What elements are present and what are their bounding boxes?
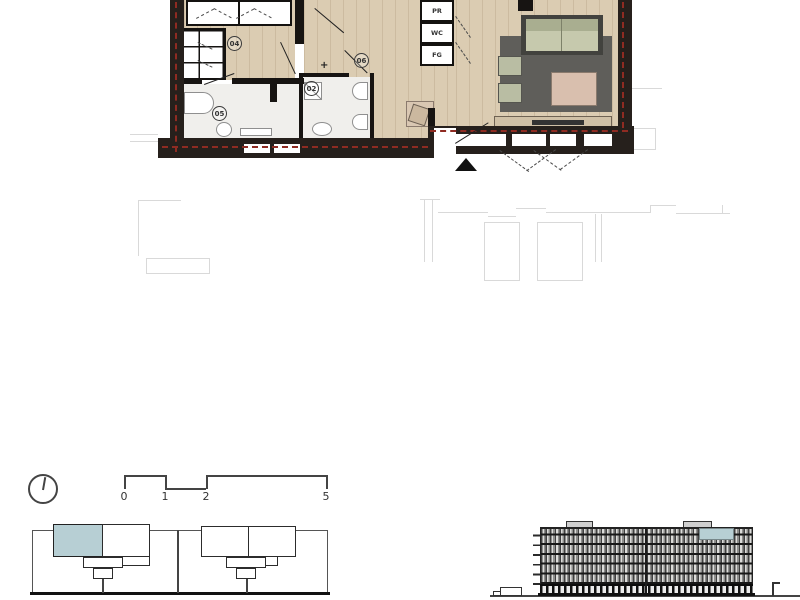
elevation-kiosk — [500, 587, 522, 596]
neighbor-outline — [130, 134, 158, 135]
exterior-wall-left — [170, 0, 184, 158]
balcony-door-glass — [512, 134, 546, 146]
interior-wall — [370, 73, 374, 138]
scale-tick-label: 0 — [117, 490, 131, 503]
room-label: 04 — [227, 36, 242, 51]
elevation-joint-line — [645, 527, 647, 594]
toilet-icon — [216, 122, 232, 137]
neighbor-outline — [722, 205, 723, 214]
scale-bar-segment — [206, 475, 326, 477]
neighbor-skylight — [484, 222, 520, 281]
appliance-box: PR — [420, 0, 454, 22]
key-plan-stair — [93, 568, 113, 579]
sofa-back-cushion — [526, 19, 598, 31]
appliance-label: PR — [432, 7, 442, 15]
key-plan-unit — [102, 524, 150, 557]
scale-bar-tick — [124, 475, 126, 489]
appliance-label: FG — [432, 51, 442, 59]
key-plan-unit — [248, 526, 296, 557]
room-number: 02 — [307, 85, 317, 93]
neighbor-outline — [516, 208, 546, 209]
scale-bar-segment — [124, 475, 165, 477]
coffee-table — [551, 72, 597, 106]
neighbor-outline — [601, 214, 602, 262]
elevation-pole — [772, 582, 774, 596]
interior-wall — [299, 73, 349, 77]
scale-tick-label: 5 — [319, 490, 333, 503]
elevation-base-line — [538, 593, 755, 596]
room-label: 06 — [354, 53, 369, 68]
neighbor-outline — [488, 216, 516, 217]
room-number: 04 — [230, 40, 240, 48]
balcony-door-glass — [550, 134, 576, 146]
neighbor-outline — [595, 214, 596, 262]
insulation-line — [175, 2, 177, 152]
neighbor-outline — [546, 212, 650, 213]
interior-wall — [518, 0, 533, 11]
key-plan-divider — [177, 530, 179, 593]
key-plan-stair-line — [102, 579, 104, 593]
key-plan-ground-line — [30, 592, 330, 595]
tv-screen — [532, 120, 584, 125]
room-label: 02 — [304, 81, 319, 96]
washer-icon — [240, 128, 272, 136]
scale-tick-label: 2 — [199, 490, 213, 503]
appliance-label: WC — [431, 29, 443, 37]
interior-wall — [299, 73, 303, 138]
insulation-line — [622, 2, 624, 128]
neighbor-outline — [424, 200, 425, 262]
scale-bar-tick — [206, 475, 208, 489]
key-plan-stair — [236, 568, 256, 579]
elevation-kiosk-step — [493, 591, 501, 596]
insulation-line — [162, 146, 428, 148]
neighbor-outline — [632, 128, 656, 150]
neighbor-outline — [650, 205, 651, 213]
key-plan-unit-highlight — [53, 524, 103, 557]
key-plan-stair — [226, 557, 266, 568]
elevation-pole-arm — [772, 582, 780, 584]
neighbor-outline — [130, 141, 158, 142]
balcony-door-glass — [448, 134, 506, 146]
neighbor-outline — [146, 258, 210, 274]
pouf — [498, 83, 522, 103]
appliance-box: FG — [420, 44, 454, 66]
sofa-cushion-divider — [561, 19, 562, 51]
room-number: 05 — [215, 110, 225, 118]
scale-bar-tick — [165, 475, 167, 489]
interior-wall — [270, 84, 277, 102]
neighbor-outline — [650, 205, 676, 206]
plus-marker: + — [320, 60, 328, 71]
scale-bar-tick — [326, 475, 328, 489]
wardrobe-top — [186, 0, 292, 26]
neighbor-skylight — [537, 222, 583, 281]
neighbor-outline — [438, 212, 488, 213]
appliance-box: WC — [420, 22, 454, 44]
room-number: 06 — [357, 57, 367, 65]
pouf — [498, 56, 522, 76]
neighbor-outline — [632, 88, 662, 89]
key-plan-stair-line — [246, 579, 248, 593]
window — [584, 134, 612, 146]
neighbor-outline — [138, 200, 181, 256]
insulation-line — [430, 130, 628, 132]
sink-icon — [352, 82, 368, 100]
neighbor-outline — [420, 199, 440, 200]
entrance-triangle-icon — [455, 158, 477, 171]
toilet-icon — [312, 122, 332, 136]
exterior-wall-right — [618, 0, 632, 134]
room-label: 05 — [212, 106, 227, 121]
sink-icon — [352, 114, 368, 130]
bathtub-icon — [184, 92, 214, 114]
scale-tick-label: 1 — [158, 490, 172, 503]
drawing-sheet: PR WC FG 04 06 02 05 + — [0, 0, 800, 600]
key-plan-stair — [83, 557, 123, 568]
interior-wall — [232, 78, 304, 84]
neighbor-outline — [432, 200, 433, 262]
elevation-unit-highlight — [699, 528, 734, 540]
key-plan-unit — [201, 526, 249, 557]
interior-wall — [295, 0, 304, 44]
